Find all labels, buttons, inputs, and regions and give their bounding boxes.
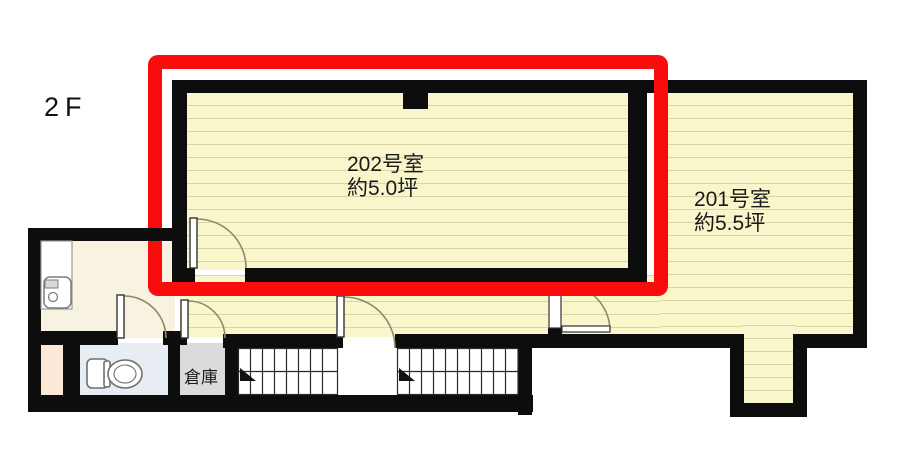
stairs-direction-arrow	[240, 368, 256, 381]
sink-icon	[41, 241, 72, 309]
storage-label: 倉庫	[184, 363, 218, 388]
floor-plan: 2F 202号室 約5.0坪 201号室 約5.5坪 倉庫	[0, 0, 904, 456]
door-leaf	[181, 300, 188, 338]
room-201-label: 201号室 約5.5坪	[694, 188, 771, 236]
floor-label: 2F	[44, 92, 88, 123]
stairs	[239, 349, 519, 395]
door-stairs	[337, 296, 395, 348]
door-storage	[181, 300, 225, 338]
door-toilet	[117, 295, 166, 338]
highlight-box	[148, 55, 668, 296]
door-leaf	[562, 326, 610, 332]
toilet-icon	[87, 359, 142, 388]
room-201-area: 約5.5坪	[694, 212, 771, 236]
stairs-direction-arrow	[399, 368, 415, 381]
door-leaf	[337, 296, 344, 337]
door-leaf	[117, 295, 124, 338]
room-201-name: 201号室	[694, 188, 771, 212]
wall	[146, 228, 164, 241]
